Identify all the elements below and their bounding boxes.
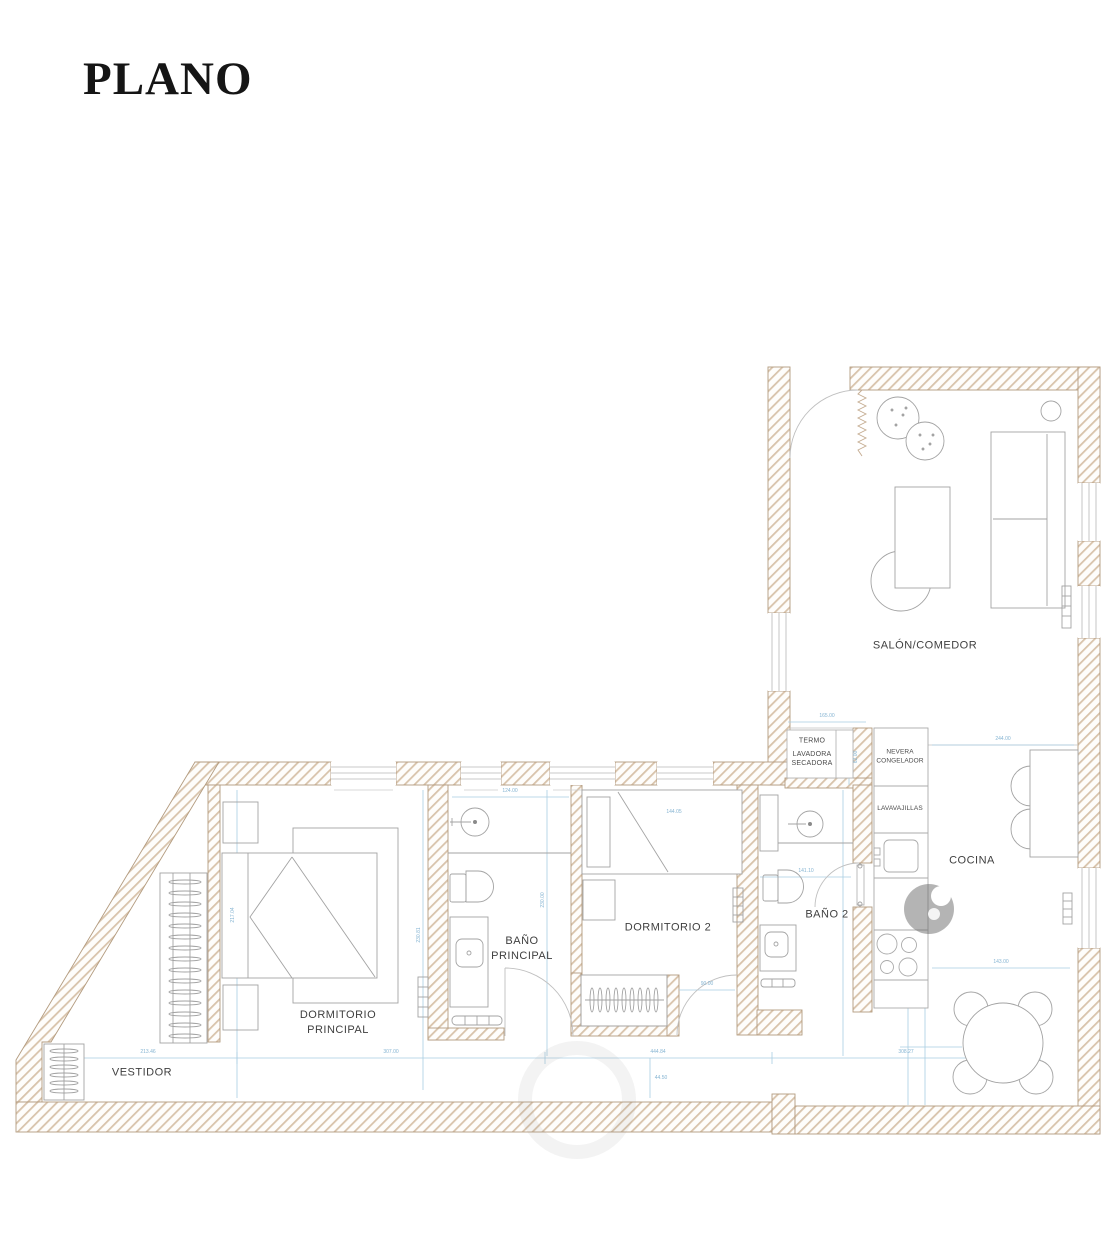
dining-table-set [953,992,1053,1094]
bar-table-icon [1030,750,1078,857]
window-icon [1078,483,1100,541]
nightstand-icon [223,802,258,843]
wardrobe-icon [160,873,207,1043]
dimension-label: 213.46 [140,1049,155,1055]
room-label-line: BAÑO [491,934,553,949]
room-label-vestidor: VESTIDOR [112,1066,172,1081]
dorm-principal-furniture [222,802,428,1030]
dimension-label: 90.00 [701,981,714,987]
dimension-label: 230.00 [540,892,546,907]
coffee-table-icon [895,487,950,588]
label-line: LAVADORA [792,750,833,759]
room-label-bano-principal: BAÑO PRINCIPAL [491,934,553,964]
radiator-icon [1063,893,1072,924]
towel-radiator-icon [761,979,795,987]
room-label-dormitorio-principal: DORMITORIO PRINCIPAL [300,1008,376,1038]
closet-hangers-icon [581,975,667,1026]
room-label-line: PRINCIPAL [300,1023,376,1038]
toilet-icon [450,871,494,902]
entry-door-fold-icon [858,390,866,456]
dimension-label: 124.00 [502,788,517,794]
label-termo: TERMO [799,737,825,746]
dimension-label: 244.00 [995,736,1010,742]
dimension-label: 141.10 [798,868,813,874]
dimension-label: 308.27 [898,1049,913,1055]
label-lavadora-secadora: LAVADORA SECADORA [792,750,833,768]
nightstand-icon [223,985,258,1030]
chair-icon [1011,766,1031,806]
sink-icon [450,808,489,836]
dimension-label: 230.81 [416,927,422,942]
sink-icon [788,811,823,837]
salon-furniture [790,390,1071,628]
window-icon [331,762,396,790]
entry-door-arc [790,390,858,458]
window-icon [1078,868,1100,948]
shower-icon [760,925,796,971]
plant-icon [877,397,944,460]
dimension-label: 444.84 [650,1049,665,1055]
dimension-label: 62.00 [853,751,859,764]
label-lavavajillas: LAVAVAJILLAS [877,805,923,814]
bed-icon [222,853,377,978]
window-icon [768,613,790,691]
towel-radiator-icon [452,1016,502,1025]
dimension-label: 144.05 [666,809,681,815]
bed-icon [582,790,742,874]
dimension-label: 143.00 [993,959,1008,965]
bano2-fixtures [760,795,864,987]
door-icon [815,863,864,907]
window-icon [657,762,713,790]
wardrobe-icon [44,1044,84,1100]
dining-table-icon [963,1003,1043,1083]
room-label-line: DORMITORIO [300,1008,376,1023]
desk-icon [583,880,615,920]
floor-plan-drawing [0,0,1112,1242]
room-label-salon-comedor: SALÓN/COMEDOR [873,639,977,654]
dimension-label: 217.04 [230,907,236,922]
label-line: SECADORA [792,759,833,768]
room-label-line: PRINCIPAL [491,949,553,964]
label-nevera-congelador: NEVERA CONGELADOR [876,749,923,766]
watermark-logo [904,884,954,934]
kitchen-counter [874,728,928,1008]
toilet-icon [763,870,804,903]
label-line: CONGELADOR [876,757,923,766]
window-icon [550,762,615,790]
door-arc [815,863,859,907]
dimension-label: 307.00 [383,1049,398,1055]
room-label-dormitorio2: DORMITORIO 2 [625,921,711,936]
dimension-label: 165.00 [819,713,834,719]
side-table-icon [1041,401,1061,421]
sofa-icon [991,432,1065,608]
chair-icon [1011,809,1031,849]
watermark-faint [525,1048,629,1152]
window-icon [1078,586,1100,638]
bar-table-set [1011,750,1078,857]
bano-principal-fixtures [448,808,573,1036]
room-label-cocina: COCINA [949,854,995,869]
cabinet-icon [760,795,778,851]
shower-icon [450,917,488,1007]
door-arc [505,968,573,1036]
dimension-label: 44.50 [655,1075,668,1081]
window-icon [461,762,501,790]
room-label-bano2: BAÑO 2 [805,908,848,923]
label-line: NEVERA [876,749,923,758]
dorm2-furniture [581,790,743,1035]
